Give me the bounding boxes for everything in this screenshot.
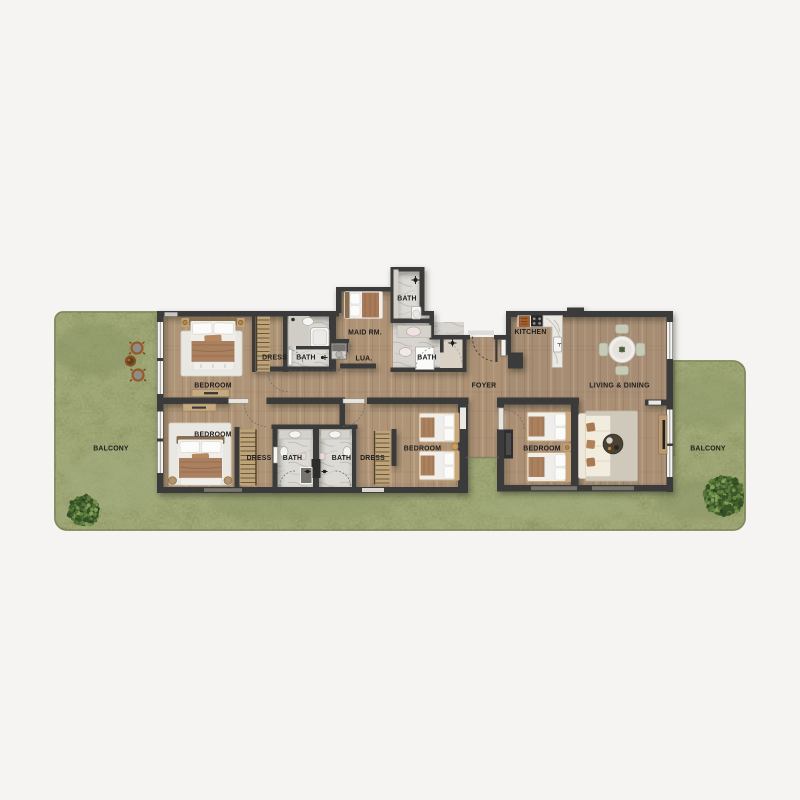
svg-text:LIVING & DINING: LIVING & DINING [589, 382, 650, 389]
svg-text:LUA.: LUA. [356, 355, 373, 362]
svg-text:BEDROOM: BEDROOM [404, 446, 441, 453]
svg-text:BATH: BATH [332, 455, 351, 462]
svg-text:BATH: BATH [417, 355, 436, 362]
svg-text:BALCONY: BALCONY [93, 446, 129, 453]
svg-text:BATH: BATH [296, 355, 315, 362]
svg-text:KITCHEN: KITCHEN [514, 329, 546, 336]
svg-text:BEDROOM: BEDROOM [194, 432, 231, 439]
svg-text:FOYER: FOYER [472, 383, 497, 390]
svg-text:BEDROOM: BEDROOM [194, 382, 231, 389]
svg-text:MAID RM.: MAID RM. [348, 330, 382, 337]
svg-text:BATH: BATH [283, 455, 302, 462]
svg-text:BEDROOM: BEDROOM [523, 446, 560, 453]
svg-text:DRESS: DRESS [262, 355, 287, 362]
svg-text:DRESS: DRESS [360, 455, 385, 462]
svg-text:BALCONY: BALCONY [690, 446, 726, 453]
svg-text:DRESS: DRESS [247, 455, 272, 462]
svg-text:BATH: BATH [397, 296, 416, 303]
